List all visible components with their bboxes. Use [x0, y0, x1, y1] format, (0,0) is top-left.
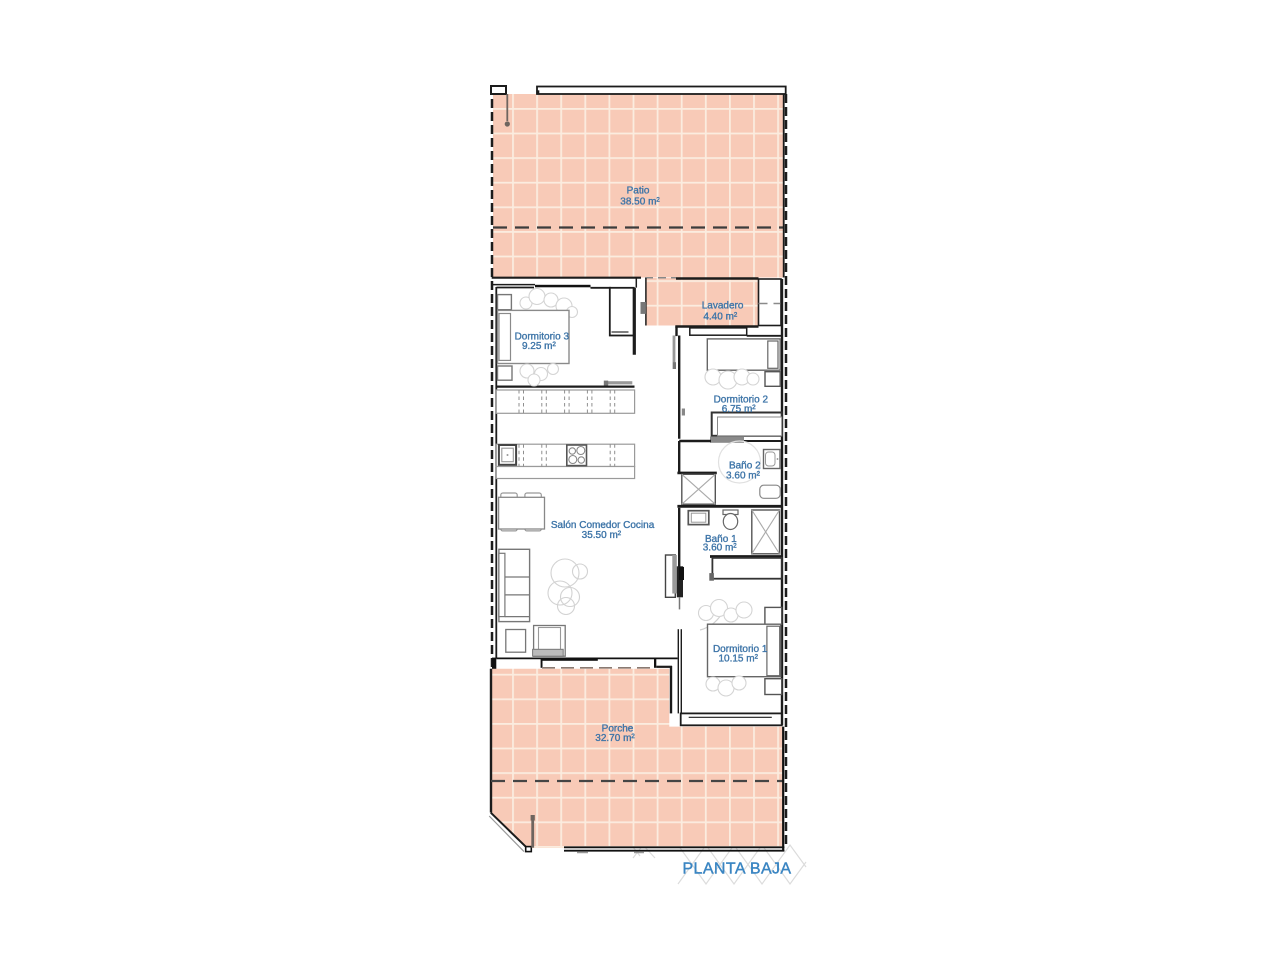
- svg-text:Lavadero: Lavadero: [702, 300, 744, 311]
- svg-text:35.50 m²: 35.50 m²: [582, 530, 622, 541]
- svg-text:4.40 m²: 4.40 m²: [703, 311, 738, 322]
- svg-text:38.50 m²: 38.50 m²: [620, 197, 660, 208]
- svg-text:PLANTA BAJA: PLANTA BAJA: [682, 861, 791, 878]
- svg-text:32.70 m²: 32.70 m²: [595, 733, 635, 744]
- svg-text:Patio: Patio: [627, 185, 650, 196]
- svg-text:3.60 m²: 3.60 m²: [726, 471, 761, 482]
- svg-text:10.15 m²: 10.15 m²: [718, 654, 758, 665]
- svg-text:6.75 m²: 6.75 m²: [722, 404, 757, 415]
- svg-text:9.25 m²: 9.25 m²: [522, 341, 557, 352]
- svg-text:3.60 m²: 3.60 m²: [703, 543, 738, 554]
